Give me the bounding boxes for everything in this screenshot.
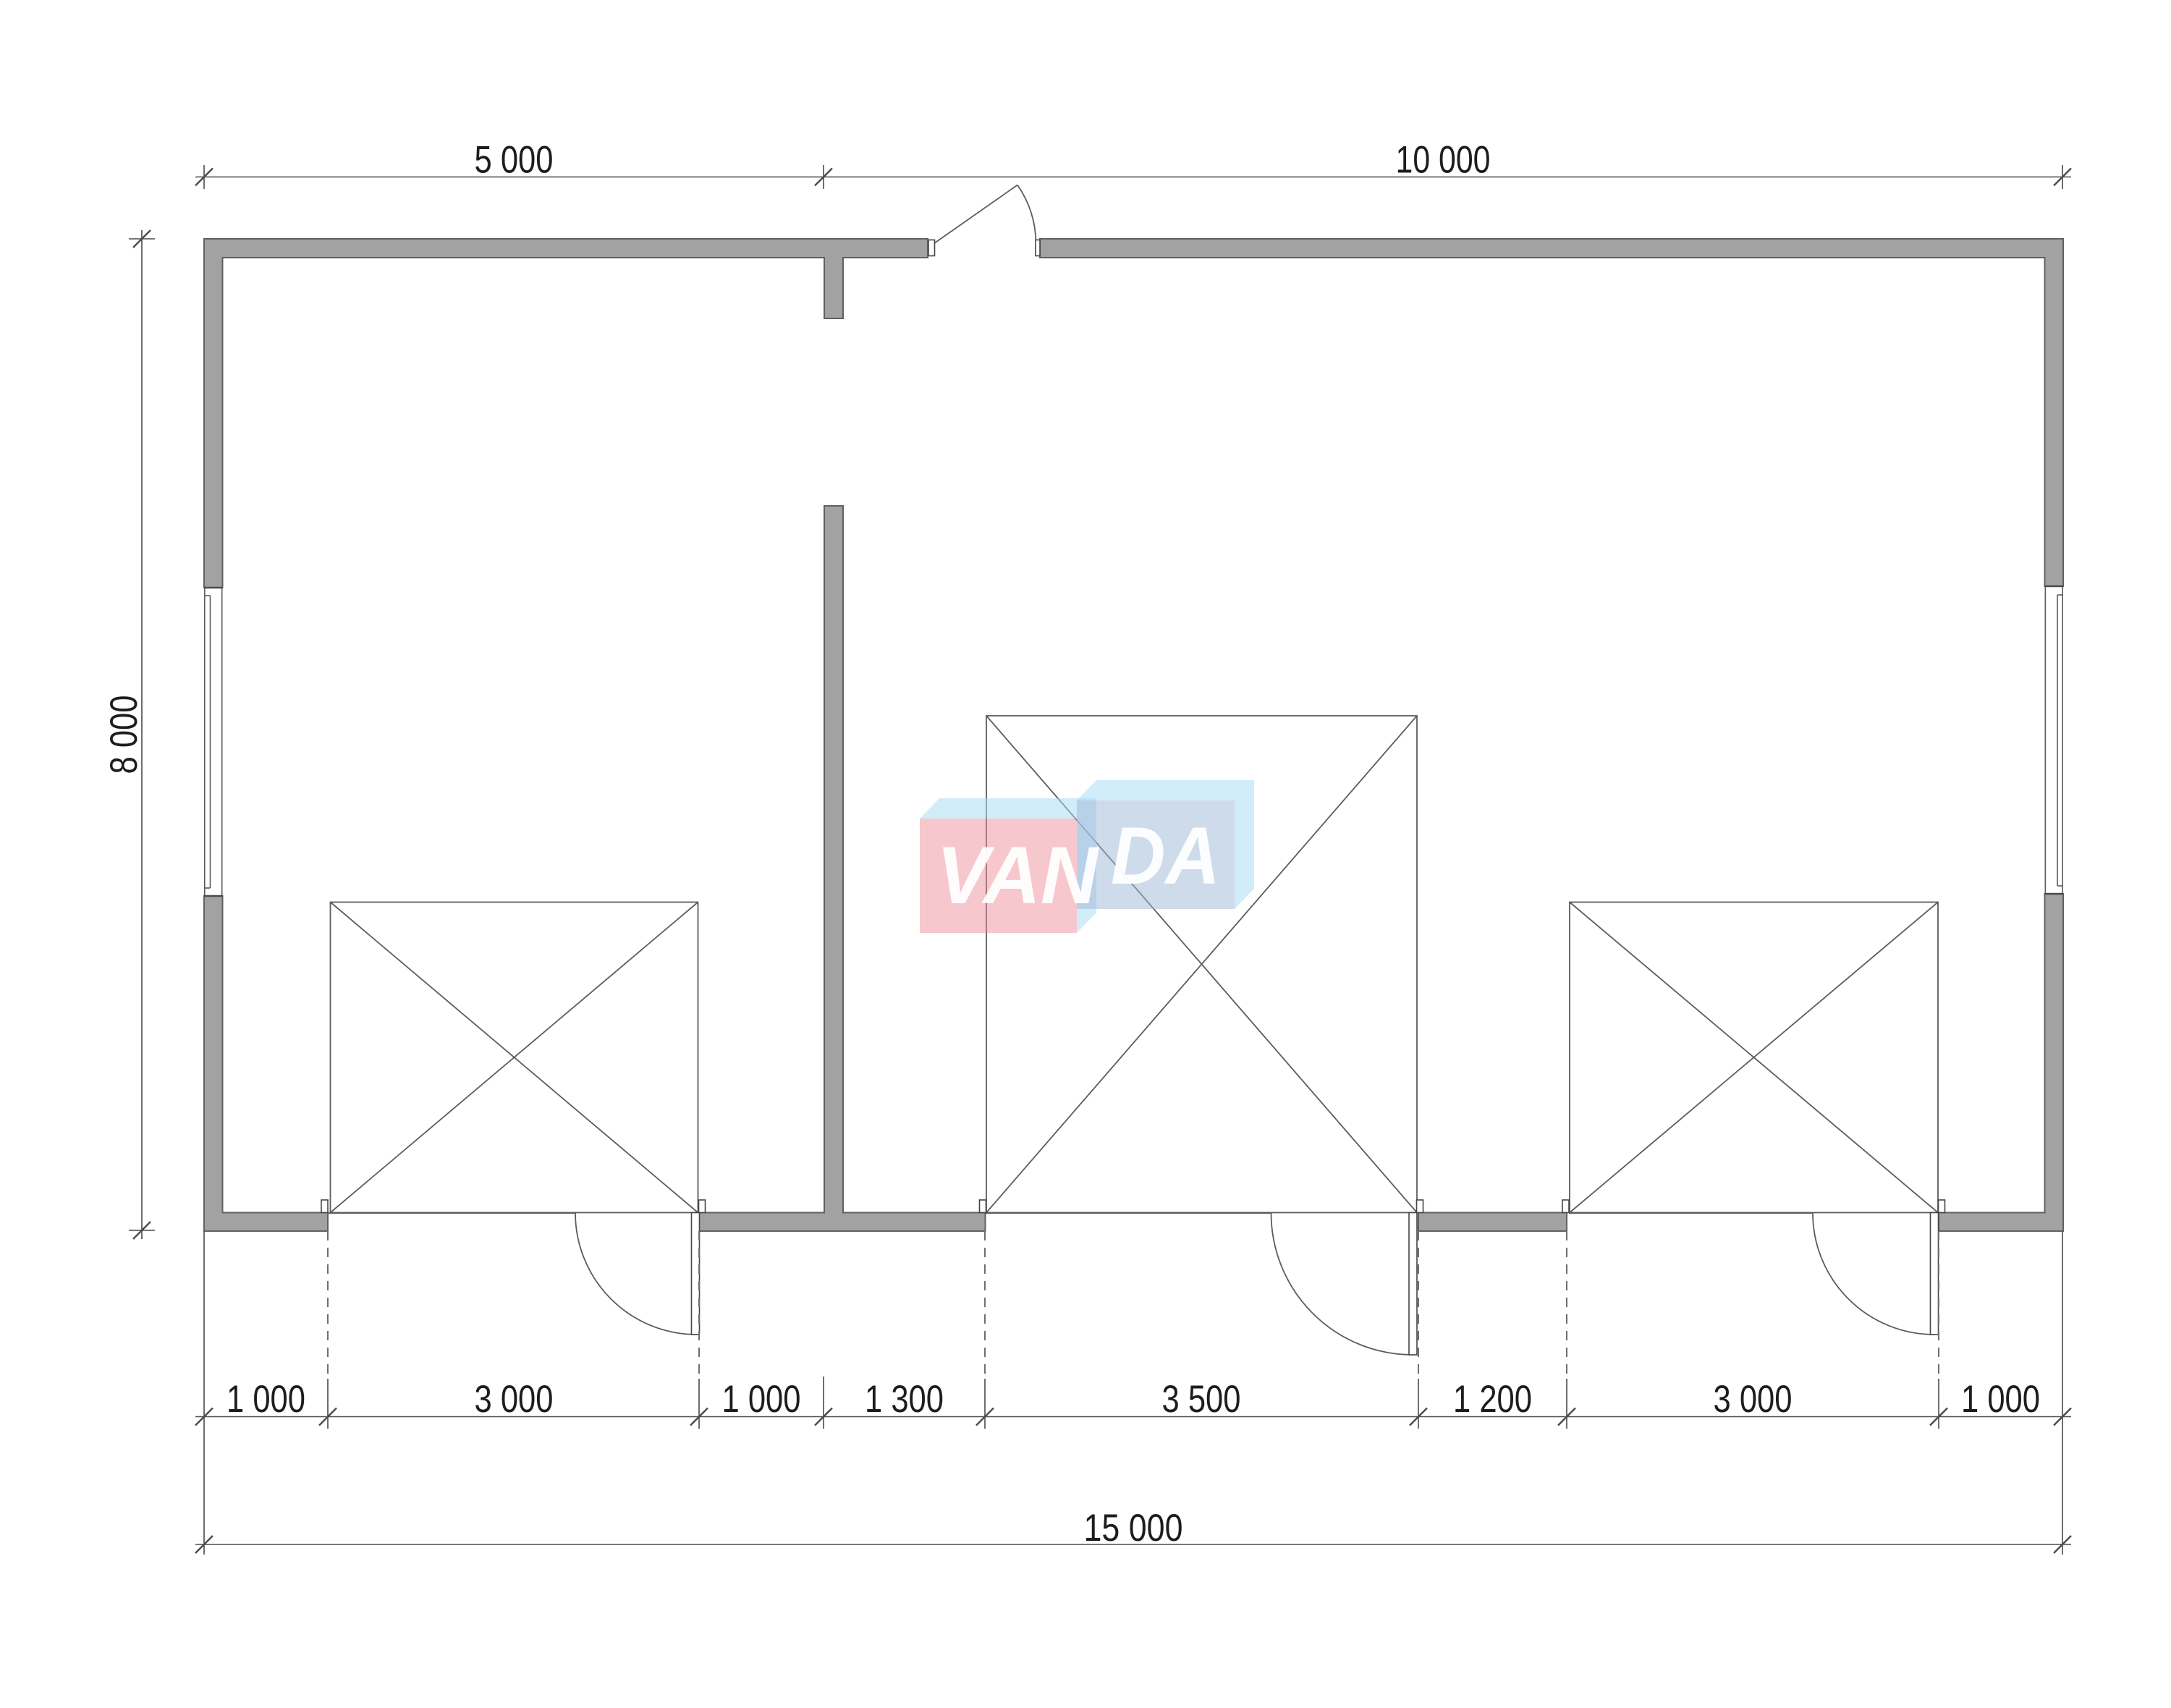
svg-text:10 000: 10 000 (1396, 139, 1491, 182)
svg-text:1 000: 1 000 (722, 1378, 801, 1421)
svg-text:5 000: 5 000 (475, 139, 554, 182)
svg-text:1 200: 1 200 (1453, 1378, 1532, 1421)
svg-text:1 300: 1 300 (865, 1378, 944, 1421)
svg-text:3 500: 3 500 (1162, 1378, 1241, 1421)
svg-text:3 000: 3 000 (475, 1378, 554, 1421)
svg-text:15 000: 15 000 (1084, 1507, 1183, 1550)
svg-text:3 000: 3 000 (1714, 1378, 1793, 1421)
svg-text:DA: DA (1111, 811, 1220, 901)
svg-text:VAN: VAN (936, 830, 1099, 921)
svg-text:1 000: 1 000 (1961, 1378, 2040, 1421)
svg-text:8 000: 8 000 (103, 696, 145, 774)
svg-text:1 000: 1 000 (227, 1378, 305, 1421)
